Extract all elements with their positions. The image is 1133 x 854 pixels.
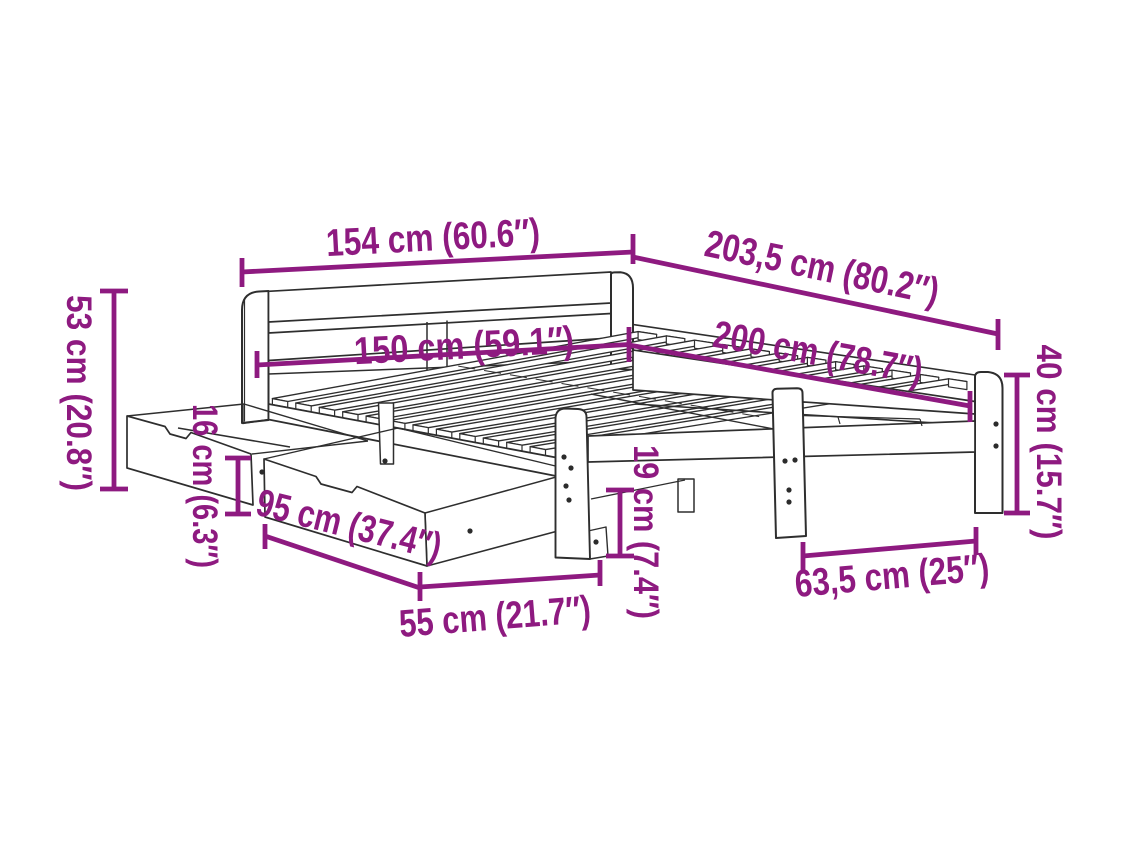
svg-text:19 cm (7.4″): 19 cm (7.4″) <box>626 445 666 619</box>
svg-text:40 cm (15.7″): 40 cm (15.7″) <box>1029 345 1069 540</box>
svg-text:16 cm (6.3″): 16 cm (6.3″) <box>185 404 225 568</box>
svg-text:53 cm (20.8″): 53 cm (20.8″) <box>59 295 99 491</box>
